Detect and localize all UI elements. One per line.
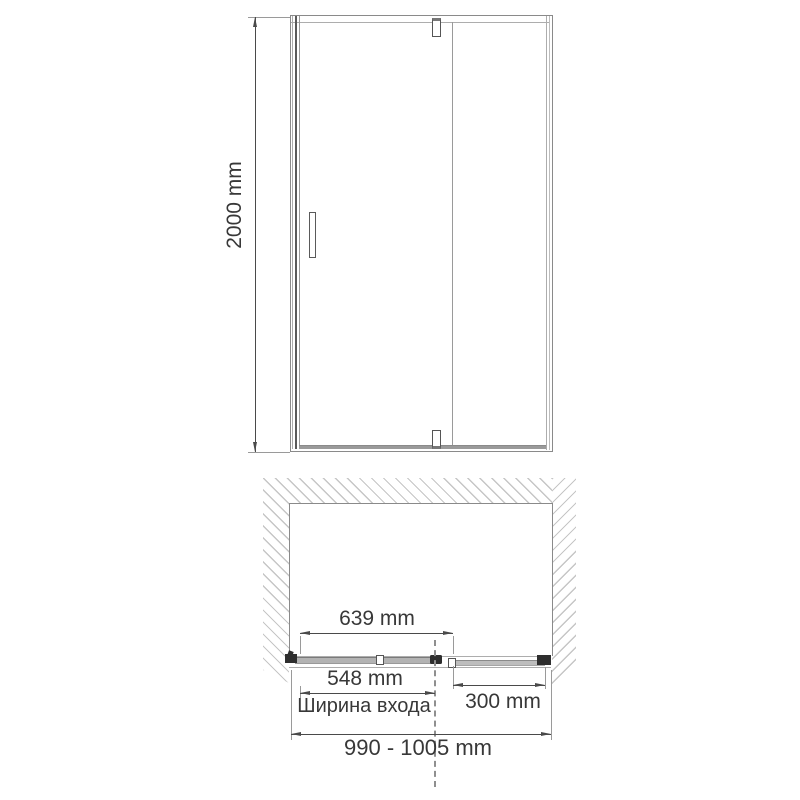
arrow-left-icon: [453, 683, 463, 687]
dimtotal-extension-right: [551, 670, 552, 740]
wall-hatch-left-top: [263, 478, 552, 683]
niche-left-edge: [289, 503, 290, 656]
door-fixed-divider-line: [452, 22, 453, 445]
arrow-right-icon: [443, 631, 453, 635]
door-glass-bar: [295, 657, 437, 664]
entrance-width-dimension-label: 548 mm: [285, 667, 445, 691]
frame-top-inner-line: [291, 22, 550, 23]
arrow-up-icon: [253, 17, 257, 27]
wall-profile-line-inner: [299, 16, 300, 449]
pivot-hinge: [430, 655, 442, 664]
arrow-right-icon: [535, 683, 545, 687]
wall-bracket-right: [537, 655, 551, 665]
glass-clamp-middle: [376, 655, 384, 665]
bottom-sill-bar: [299, 446, 546, 449]
frame-right-inner-line-2: [549, 16, 550, 450]
height-dimension-label: 2000 mm: [223, 145, 247, 265]
arrow-down-icon: [253, 442, 257, 452]
hinge-bottom-icon: [432, 430, 441, 449]
dim300-line: [453, 685, 545, 686]
arrow-left-icon: [291, 732, 301, 736]
arrow-right-icon: [541, 732, 551, 736]
arrow-left-icon: [300, 631, 310, 635]
door-width-dimension-label: 639 mm: [297, 607, 457, 631]
technical-drawing-canvas: 2000 mm: [0, 0, 800, 800]
dim639-extension-right: [453, 636, 454, 654]
dim639-line: [300, 633, 453, 634]
fixed-glass-bar: [450, 660, 545, 667]
wall-hatch-right: [552, 478, 576, 687]
height-dimension-line: [255, 17, 256, 452]
hinge-top-icon: [432, 18, 441, 37]
dim639-extension-left: [300, 636, 301, 654]
niche-top-edge: [289, 503, 552, 504]
overall-width-dimension-label: 990 - 1005 mm: [308, 735, 528, 761]
door-handle: [309, 212, 316, 258]
door-frame-outline: [290, 15, 553, 452]
niche-right-edge: [552, 503, 553, 656]
wall-profile-line-outer: [292, 16, 293, 449]
dimtotal-extension-left: [291, 670, 292, 740]
wall-profile-bar: [295, 16, 297, 449]
frame-right-inner-line-1: [546, 16, 547, 450]
fixed-panel-dimension-label: 300 mm: [423, 690, 583, 714]
